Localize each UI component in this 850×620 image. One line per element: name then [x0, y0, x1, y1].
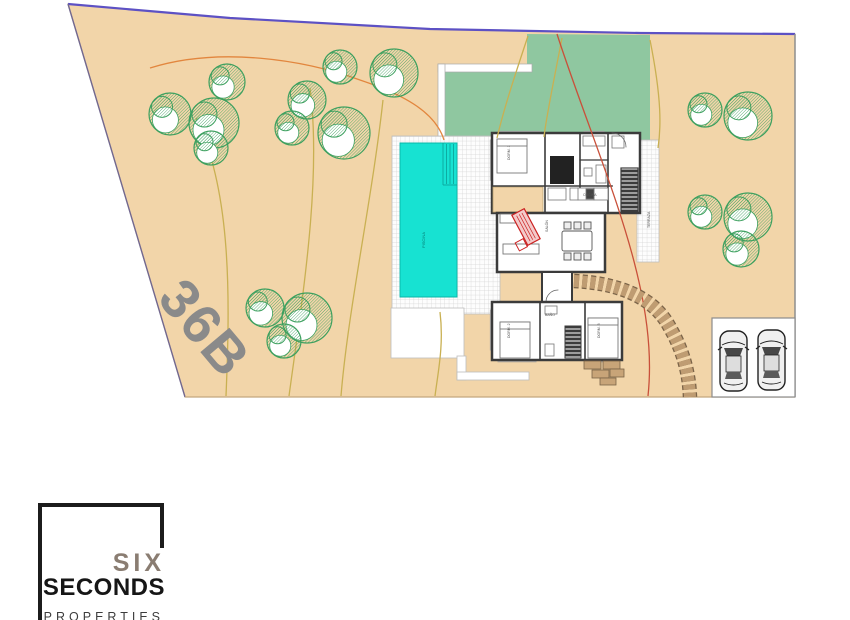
tree-icon: [194, 131, 228, 165]
wardrobe-icon: [550, 156, 574, 184]
shower-icon: [565, 326, 581, 358]
bed-icon: [497, 139, 527, 173]
car-icon: [718, 331, 749, 391]
tree-icon: [323, 50, 357, 84]
tree-icon: [318, 107, 370, 159]
svg-text:DORM. 3: DORM. 3: [597, 323, 601, 338]
logo-frame-left: [38, 503, 42, 620]
site-plan-page: DORM. 1 SALÓN COCINA BAÑO DORM. 2 DORM. …: [0, 0, 850, 620]
logo-frame-right: [160, 503, 164, 548]
logo-word-six: SIX: [113, 551, 165, 576]
tree-icon: [209, 64, 245, 100]
patio: [493, 187, 543, 212]
logo-word-seconds: SECONDS: [43, 576, 165, 600]
bed-icon: [588, 318, 618, 358]
tree-icon: [267, 324, 301, 358]
svg-text:SALÓN: SALÓN: [544, 220, 549, 232]
svg-text:DORM. 2: DORM. 2: [507, 323, 511, 338]
tree-icon: [724, 92, 772, 140]
tree-icon: [688, 195, 722, 229]
dining-table-icon: [562, 222, 592, 260]
kitchen-counter: [548, 188, 608, 200]
tree-icon: [688, 93, 722, 127]
car-icon: [756, 330, 787, 390]
logo-word-properties: PROPERTIES: [44, 611, 164, 620]
parking-area: [712, 318, 795, 397]
svg-text:BAÑO: BAÑO: [545, 312, 555, 317]
tree-icon: [723, 231, 759, 267]
svg-text:DORM. 1: DORM. 1: [507, 145, 511, 160]
stair-icon: [621, 168, 638, 213]
logo-frame-top: [38, 503, 164, 507]
tree-icon: [275, 111, 309, 145]
pool-label: PISCINA: [421, 232, 426, 248]
tree-icon: [370, 49, 418, 97]
agency-logo: SIX SECONDS PROPERTIES: [38, 503, 164, 620]
svg-text:TERRAZA: TERRAZA: [647, 211, 651, 228]
tree-icon: [246, 289, 284, 327]
svg-text:COCINA: COCINA: [583, 193, 597, 197]
tree-icon: [149, 93, 191, 135]
swimming-pool: PISCINA: [400, 143, 457, 297]
bed-icon: [500, 322, 530, 358]
